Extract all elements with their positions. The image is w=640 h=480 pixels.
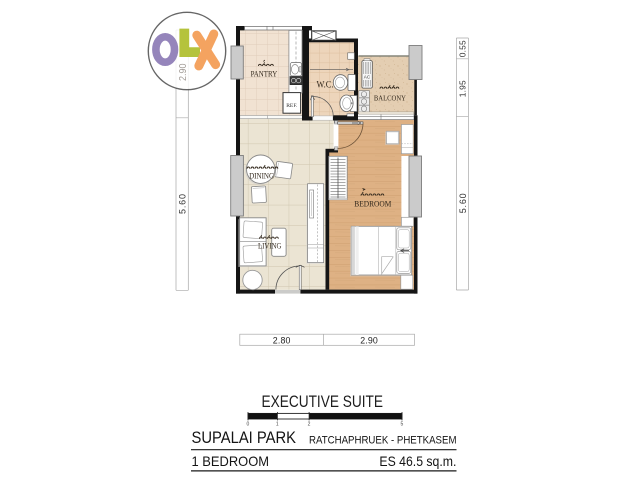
svg-text:2: 2	[308, 422, 311, 428]
svg-text:BALCONY: BALCONY	[374, 93, 406, 102]
svg-text:1: 1	[276, 422, 279, 428]
svg-text:PANTRY: PANTRY	[251, 69, 278, 78]
svg-text:2.80: 2.80	[273, 335, 291, 345]
svg-text:W.C.: W.C.	[317, 80, 334, 90]
svg-text:0: 0	[247, 422, 250, 428]
svg-text:DINING: DINING	[249, 171, 274, 180]
svg-text:1.95: 1.95	[458, 80, 468, 97]
svg-text:RATCHAPHRUEK - PHETKASEM: RATCHAPHRUEK - PHETKASEM	[309, 434, 457, 446]
svg-text:5.60: 5.60	[458, 193, 468, 213]
svg-text:ES 46.5 sq.m.: ES 46.5 sq.m.	[379, 454, 456, 469]
svg-text:1 BEDROOM: 1 BEDROOM	[192, 453, 270, 469]
svg-text:REF.: REF.	[286, 103, 298, 109]
svg-text:5: 5	[401, 422, 404, 428]
svg-text:5.60: 5.60	[178, 194, 188, 214]
svg-text:LIVING: LIVING	[258, 242, 281, 251]
svg-text:2.90: 2.90	[177, 63, 189, 81]
svg-text:EXECUTIVE SUITE: EXECUTIVE SUITE	[262, 392, 384, 411]
svg-text:0.55: 0.55	[458, 40, 468, 57]
svg-text:2.90: 2.90	[360, 335, 378, 345]
svg-text:SUPALAI PARK: SUPALAI PARK	[192, 429, 297, 447]
svg-text:AC: AC	[364, 75, 371, 80]
svg-text:BEDROOM: BEDROOM	[354, 200, 392, 209]
